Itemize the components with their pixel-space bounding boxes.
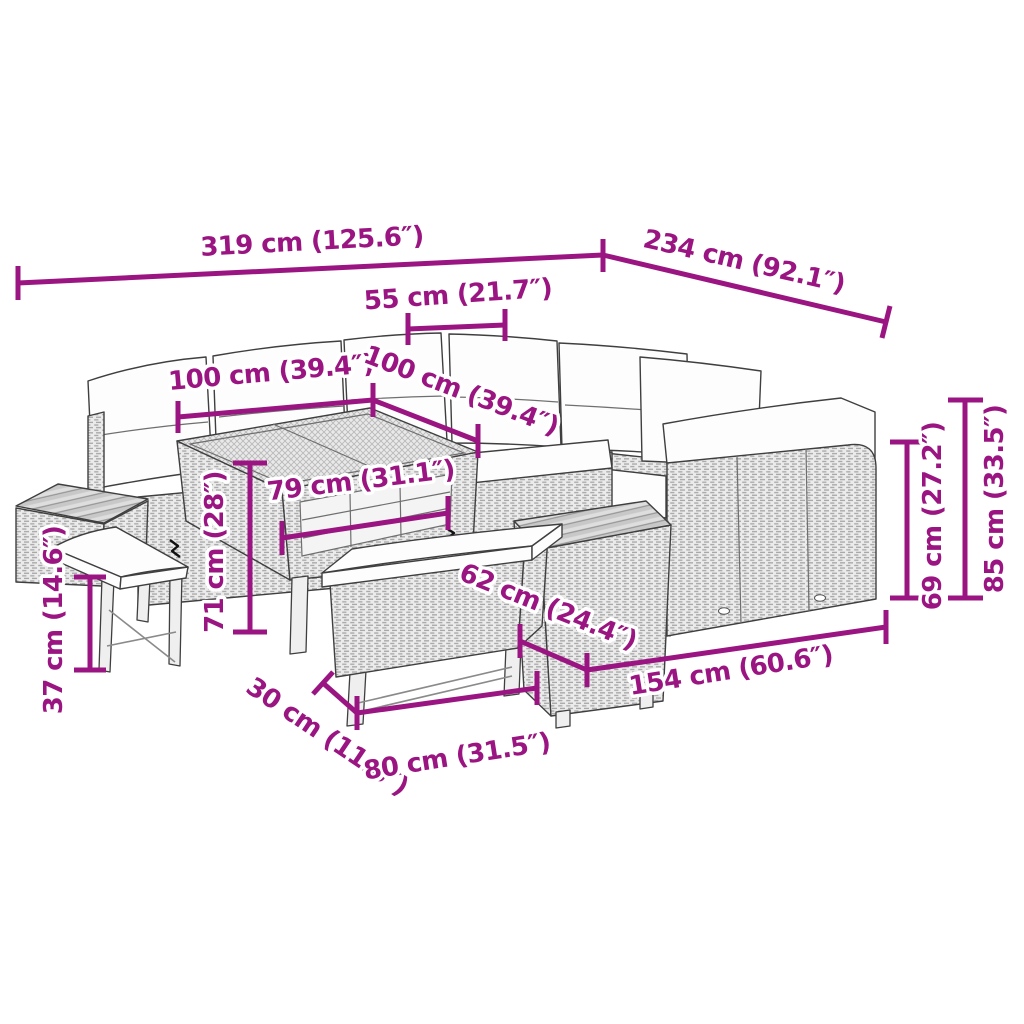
dim-total-height-label: 85 cm (33.5″) <box>980 405 1010 594</box>
dim-seat-back-height: 69 cm (27.2″) <box>890 422 948 611</box>
dim-total-depth: 234 cm (92.1″) <box>603 224 890 338</box>
dim-seat-back-height-label: 69 cm (27.2″) <box>918 422 948 611</box>
dim-bench-length: 80 cm (31.5″) <box>357 671 552 787</box>
product-dimension-diagram: 319 cm (125.6″) 234 cm (92.1″) 55 cm (21… <box>0 0 1024 1024</box>
dim-bench-length-label: 80 cm (31.5″) <box>362 727 553 786</box>
dim-seat-width-label: 55 cm (21.7″) <box>363 273 553 316</box>
center-bench <box>322 524 562 726</box>
dim-table-height-label: 71 cm (28″) <box>200 471 230 633</box>
diagram-svg: 319 cm (125.6″) 234 cm (92.1″) 55 cm (21… <box>0 0 1024 1024</box>
dim-total-width-label: 319 cm (125.6″) <box>200 221 425 263</box>
dim-stool-height-label: 37 cm (14.6″) <box>39 526 69 715</box>
dim-total-height: 85 cm (33.5″) <box>948 400 1010 598</box>
